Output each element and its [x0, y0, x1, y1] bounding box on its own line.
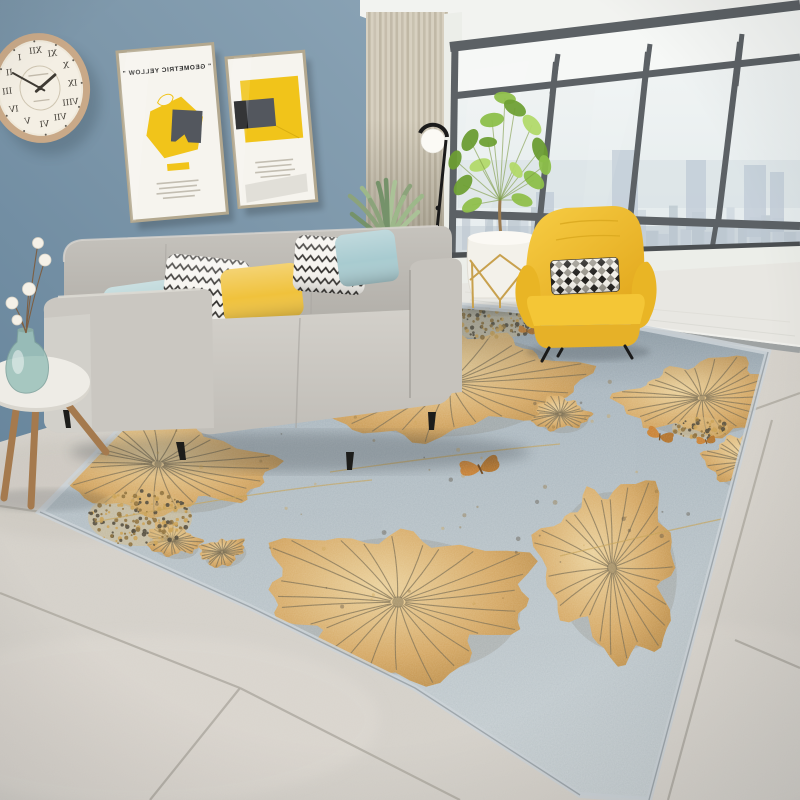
vignette — [0, 0, 800, 800]
screenshot-canvas: XIIIIIIIIIVVVIVIIVIIIIXXXI " GEOMETRIC Y… — [0, 0, 800, 800]
living-room-photo: XIIIIIIIIIVVVIVIIVIIIIXXXI " GEOMETRIC Y… — [0, 0, 800, 800]
